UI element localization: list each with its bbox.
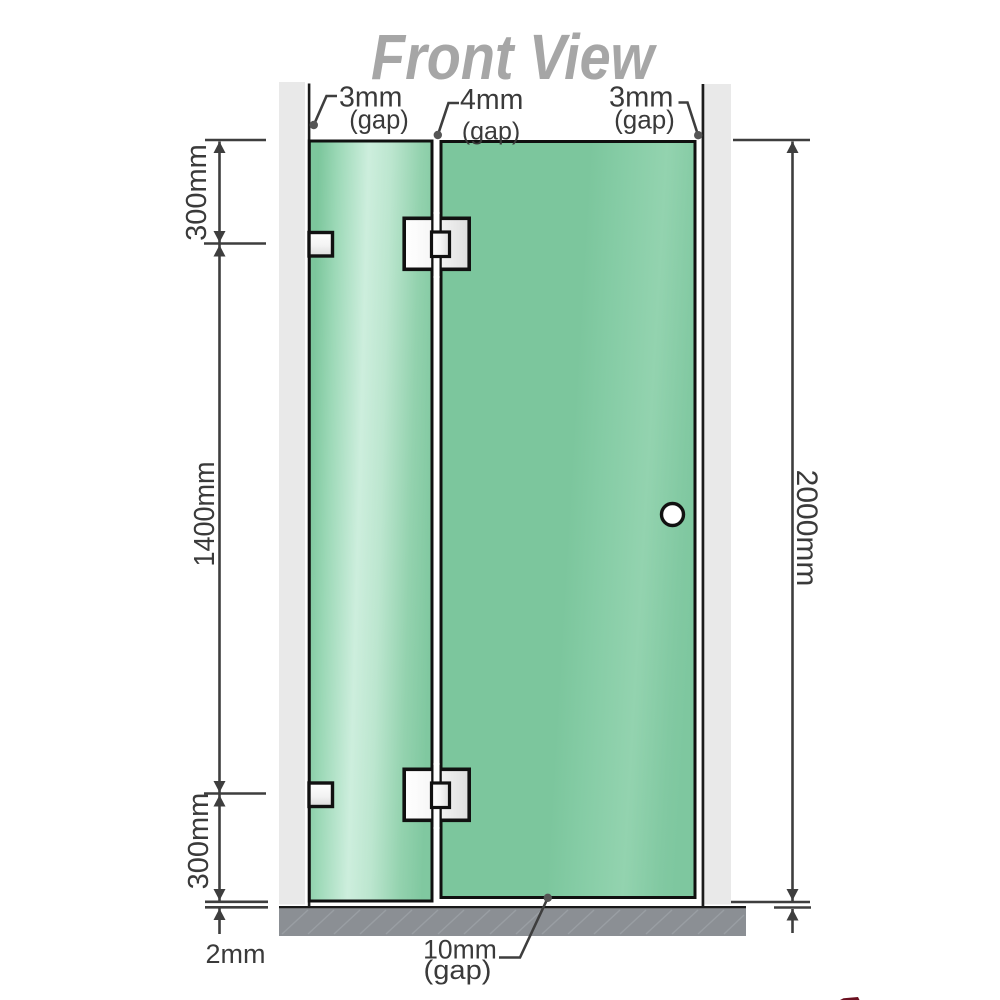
svg-text:(gap): (gap) bbox=[462, 118, 520, 146]
svg-text:300mm: 300mm bbox=[181, 144, 213, 241]
svg-text:300mm: 300mm bbox=[183, 793, 215, 890]
svg-text:(gap): (gap) bbox=[424, 955, 492, 985]
svg-text:2mm: 2mm bbox=[206, 939, 266, 969]
svg-text:(gap): (gap) bbox=[614, 105, 675, 135]
svg-text:2000mm: 2000mm bbox=[790, 470, 823, 587]
svg-text:1400mm: 1400mm bbox=[189, 462, 221, 567]
svg-text:(gap): (gap) bbox=[349, 107, 409, 135]
svg-text:4mm: 4mm bbox=[460, 84, 523, 116]
